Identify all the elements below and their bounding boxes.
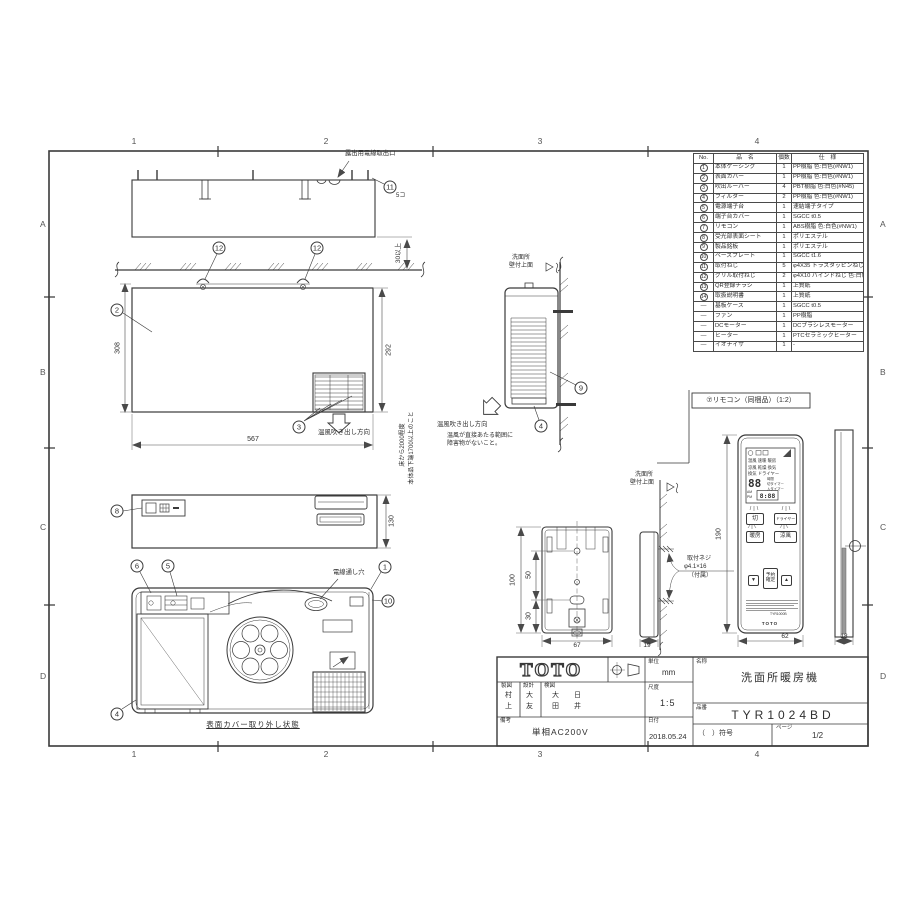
balloon-11-qty: 5コ — [396, 193, 405, 199]
air-direction-label-side: 温風吹き出し方向 — [437, 422, 487, 428]
mount-height-note-1: 床から2000程度 — [400, 423, 406, 466]
designer-name: 友 — [526, 703, 533, 710]
reserve-label-2: 確定 — [766, 579, 776, 584]
draft-label: 製図 — [501, 684, 512, 690]
mount-height-note-2: 本体品下端1700以上のこと — [409, 411, 415, 484]
part-name: 受光部表面シート — [714, 233, 777, 243]
part-name: 本体ケーシング — [714, 163, 777, 173]
table-row: 2 表面カバー 1 PP樹脂 色:白色(#NW1) — [694, 173, 864, 183]
part-name: DCモーター — [714, 322, 777, 332]
remote-toto-logo: TOTO — [762, 622, 778, 627]
fine-print-line — [746, 603, 798, 604]
grid-col-label: 4 — [755, 137, 760, 146]
table-row: 11 取付ねじ 5 φ4X35 トラスタッピンねじ — [694, 262, 864, 272]
part-no: 2 — [694, 173, 714, 183]
part-qty: 1 — [777, 302, 792, 312]
part-spec: 上質紙 — [792, 292, 864, 302]
part-qty: 1 — [777, 213, 792, 223]
balloon-6: 6 — [131, 560, 144, 573]
part-qty: 1 — [777, 312, 792, 322]
balloon-1: 1 — [379, 561, 392, 574]
bottom-view-lines — [123, 495, 391, 548]
part-no: 10 — [694, 252, 714, 262]
part-no: 3 — [694, 183, 714, 193]
scale-value: 1:5 — [660, 699, 676, 708]
part-no: 9 — [694, 243, 714, 253]
part-qty: 1 — [777, 163, 792, 173]
grid-row-label: D — [880, 672, 886, 681]
part-no: — — [694, 322, 714, 332]
clearance-note-1: 温風が直接あたる範囲に — [447, 433, 513, 439]
balloon-4-side: 4 — [535, 420, 548, 433]
part-spec: ポリエステル — [792, 243, 864, 253]
remote-reserve-button[interactable]: 予約 確定 — [763, 568, 778, 589]
dim-190: 190 — [716, 528, 723, 540]
parts-table-header: No. 品 名 個数 仕 様 — [694, 154, 864, 164]
table-row: 3 吹出ルーバー 4 PBT樹脂 色:白色(#N45) — [694, 183, 864, 193]
part-no: 14 — [694, 292, 714, 302]
col-spec: 仕 様 — [792, 154, 864, 164]
checker-name-1: 大 — [552, 692, 559, 699]
balloon-4-internal: 4 — [111, 708, 124, 721]
grid-col-label: 2 — [324, 750, 329, 759]
part-spec: 速結端子タイプ — [792, 203, 864, 213]
grid-row-label: C — [40, 523, 46, 532]
grid-col-label: 1 — [132, 137, 137, 146]
balloon-2: 2 — [111, 304, 124, 317]
part-spec: PTCセラミックヒーター — [792, 332, 864, 342]
balloon-9: 9 — [575, 382, 588, 395]
part-no: — — [694, 332, 714, 342]
table-row: 12 グリル取付ねじ 2 φ4X10 バインドねじ 色:白色 — [694, 272, 864, 282]
checker-name-2: 日 — [574, 692, 581, 699]
air-direction-label-front: 温風吹き出し方向 — [318, 430, 370, 437]
remote-display-pm: PM — [747, 496, 752, 499]
remote-display-timer-2: 切タイマー — [767, 483, 784, 486]
dim-30: 30 — [526, 612, 533, 620]
fine-print-line — [746, 608, 798, 609]
product-code: TYR1024BD — [731, 709, 834, 721]
code-label: 品番 — [696, 706, 707, 712]
dim-19: 19 — [643, 643, 650, 650]
balloon-3: 3 — [293, 421, 306, 434]
table-row: 5 電源端子台 1 速結端子タイプ — [694, 203, 864, 213]
remote-stop-button[interactable]: 切 — [746, 513, 764, 525]
remote-display-modes-2: 涼風 乾燥 換気 — [748, 466, 776, 470]
design-label: 設計 — [523, 684, 534, 690]
part-spec: PP樹脂 — [792, 312, 864, 322]
table-row: 13 QR登録チラシ 1 上質紙 — [694, 282, 864, 292]
internal-view-lines — [122, 572, 383, 713]
part-no: 11 — [694, 262, 714, 272]
unit-value: mm — [662, 669, 675, 677]
internal-view-caption: 表面カバー取り外し状態 — [206, 721, 300, 729]
grid-col-label: 2 — [324, 137, 329, 146]
drafter-name: 上 — [505, 703, 512, 710]
mount-screw-note-1: 取付ネジ — [687, 556, 711, 562]
grid-row-label: B — [40, 368, 46, 377]
part-spec: - — [792, 341, 864, 351]
grid-row-label: A — [40, 220, 46, 229]
balloon-11: 11 — [384, 181, 397, 194]
product-name: 洗面所暖房機 — [741, 673, 819, 684]
dim-18: 18 — [840, 634, 847, 641]
table-row: 8 受光部表面シート 1 ポリエステル — [694, 233, 864, 243]
part-spec: ポリエステル — [792, 233, 864, 243]
drawing-linework — [0, 0, 900, 900]
remote-display-modes-1: 温風 速暖 暖房 — [748, 459, 776, 463]
page-value: 1/2 — [812, 732, 823, 740]
part-name: 表面カバー — [714, 173, 777, 183]
part-spec: SGCC t0.5 — [792, 213, 864, 223]
part-name: 基板ケース — [714, 302, 777, 312]
part-no: 4 — [694, 193, 714, 203]
mount-screw-note-3: （付属） — [688, 573, 712, 579]
part-no: 7 — [694, 223, 714, 233]
dim-100: 100 — [510, 574, 517, 586]
part-no: 5 — [694, 203, 714, 213]
balloon-10: 10 — [382, 595, 395, 608]
drafter-name: 村 — [505, 692, 512, 699]
table-row: 9 製品銘板 1 ポリエステル — [694, 243, 864, 253]
part-spec: PP樹脂 色:白色(#NW1) — [792, 173, 864, 183]
dim-308: 308 — [115, 342, 122, 354]
col-no: No. — [694, 154, 714, 164]
fine-print-line — [746, 610, 786, 611]
table-row: 14 取扱説明書 1 上質紙 — [694, 292, 864, 302]
table-row: 10 ベースプレート 1 SGCC t1.6 — [694, 252, 864, 262]
side-view-lines — [477, 257, 576, 452]
remote-up-button[interactable]: ▲ — [781, 575, 792, 586]
remote-display-modes-3: 換気 ドライヤー — [748, 472, 779, 476]
part-spec: PBT樹脂 色:白色(#N45) — [792, 183, 864, 193]
date-label: 日付 — [648, 719, 659, 725]
grid-col-label: 3 — [538, 750, 543, 759]
grid-row-label: B — [880, 368, 886, 377]
remote-display-am: AM — [747, 491, 752, 494]
part-no: 13 — [694, 282, 714, 292]
part-qty: 1 — [777, 282, 792, 292]
checker-name-1: 田 — [552, 703, 559, 710]
balloon-12-left: 12 — [213, 242, 226, 255]
part-spec: DCブラシレスモーター — [792, 322, 864, 332]
grid-row-label: D — [40, 672, 46, 681]
table-row: 7 リモコン 1 ABS樹脂 色:白色(#NW1) — [694, 223, 864, 233]
part-name: リモコン — [714, 223, 777, 233]
part-qty: 1 — [777, 203, 792, 213]
clearance-note-2: 障害物がないこと。 — [447, 441, 501, 447]
part-name: 取扱説明書 — [714, 292, 777, 302]
wire-hole-label: 電線通し穴 — [333, 570, 364, 576]
part-name: QR登録チラシ — [714, 282, 777, 292]
part-qty: 2 — [777, 193, 792, 203]
wall-top-label-2: 壁付上面 — [509, 263, 533, 269]
part-name: 取付ねじ — [714, 262, 777, 272]
part-qty: 1 — [777, 322, 792, 332]
part-no: 6 — [694, 213, 714, 223]
dim-292: 292 — [386, 344, 393, 356]
part-spec: PP樹脂 色:白色(#NW1) — [792, 163, 864, 173]
toto-logo: TOTO — [520, 660, 582, 682]
part-no: 1 — [694, 163, 714, 173]
part-spec: 上質紙 — [792, 282, 864, 292]
part-qty: 1 — [777, 292, 792, 302]
remote-heater-button[interactable]: 暖房 — [746, 531, 764, 543]
dim-gap-30: 30以上 — [396, 243, 403, 263]
note-label: 備考 — [500, 719, 511, 725]
part-spec: SGCC t1.6 — [792, 252, 864, 262]
part-name: 端子台カバー — [714, 213, 777, 223]
part-name: 吹出ルーバー — [714, 183, 777, 193]
part-no: — — [694, 302, 714, 312]
part-qty: 1 — [777, 332, 792, 342]
remote-model-number: TYR1000B — [770, 613, 787, 616]
date-value: 2018.05.24 — [649, 733, 687, 741]
mount-screw-note-2: φ4.1×16 — [684, 564, 706, 570]
parts-table: No. 品 名 個数 仕 様 1 本体ケーシング 1 PP樹脂 色:白色(#NW… — [693, 153, 864, 352]
page-label: ページ — [776, 726, 792, 732]
remote-display-timer-1: 時間 — [767, 478, 774, 481]
check-label: 検図 — [544, 684, 555, 690]
remote-dryer-button[interactable]: ドライヤー — [774, 513, 797, 525]
part-no: 8 — [694, 233, 714, 243]
remote-display-time: 8:88 — [760, 493, 776, 500]
col-qty: 個数 — [777, 154, 792, 164]
part-no: 12 — [694, 272, 714, 282]
holder-wall-label-1: 洗面所 — [635, 472, 653, 478]
sign-label: （ ）符号 — [698, 730, 733, 737]
grid-col-label: 3 — [538, 137, 543, 146]
name-label: 名称 — [696, 660, 707, 666]
part-name: ファン — [714, 312, 777, 322]
parts-table-body: 1 本体ケーシング 1 PP樹脂 色:白色(#NW1) 2 表面カバー 1 PP… — [694, 163, 864, 351]
part-qty: 1 — [777, 173, 792, 183]
part-no: — — [694, 312, 714, 322]
drawing-sheet: 1 2 3 4 1 2 3 4 A B C D A B C D No. 品 名 … — [0, 0, 900, 900]
part-spec: PP樹脂 色:白色(#NW1) — [792, 193, 864, 203]
dim-62: 62 — [781, 634, 788, 641]
checker-name-2: 井 — [574, 703, 581, 710]
part-qty: 1 — [777, 252, 792, 262]
part-qty: 5 — [777, 262, 792, 272]
scale-label: 尺度 — [648, 686, 659, 692]
table-row: 1 本体ケーシング 1 PP樹脂 色:白色(#NW1) — [694, 163, 864, 173]
part-qty: 1 — [777, 223, 792, 233]
grid-col-label: 1 — [132, 750, 137, 759]
holder-wall-label-2: 壁付上面 — [630, 480, 654, 486]
outlet-label: 露出用電線取出口 — [345, 151, 395, 157]
part-qty: 1 — [777, 233, 792, 243]
part-name: グリル取付ねじ — [714, 272, 777, 282]
dim-567: 567 — [247, 436, 259, 443]
balloon-12-right: 12 — [311, 242, 324, 255]
table-row: 4 フィルター 2 PP樹脂 色:白色(#NW1) — [694, 193, 864, 203]
part-spec: φ4X10 バインドねじ 色:白色 — [792, 272, 864, 282]
top-view-lines — [132, 161, 412, 279]
dim-130: 130 — [389, 515, 396, 527]
remote-down-button[interactable]: ▼ — [748, 575, 759, 586]
part-qty: 2 — [777, 272, 792, 282]
remote-detail-title: ⑦リモコン（同梱品）（1:2） — [706, 397, 796, 404]
part-spec: ABS樹脂 色:白色(#NW1) — [792, 223, 864, 233]
fine-print-line — [746, 605, 794, 606]
part-name: フィルター — [714, 193, 777, 203]
table-row: — 基板ケース 1 SGCC t0.5 — [694, 302, 864, 312]
table-row: — イオナイザ 1 - — [694, 341, 864, 351]
part-spec: φ4X35 トラスタッピンねじ — [792, 262, 864, 272]
remote-display-digits: 88 — [748, 478, 761, 489]
front-view-lines — [115, 262, 425, 450]
table-row: — DCモーター 1 DCブラシレスモーター — [694, 322, 864, 332]
part-name: ベースプレート — [714, 252, 777, 262]
part-spec: SGCC t0.5 — [792, 302, 864, 312]
balloon-8: 8 — [111, 505, 124, 518]
grid-row-label: C — [880, 523, 886, 532]
table-row: — ファン 1 PP樹脂 — [694, 312, 864, 322]
table-row: 6 端子台カバー 1 SGCC t0.5 — [694, 213, 864, 223]
designer-name: 大 — [526, 692, 533, 699]
part-name: 電源端子台 — [714, 203, 777, 213]
part-no: — — [694, 341, 714, 351]
part-name: ヒーター — [714, 332, 777, 342]
wall-top-label-1: 洗面所 — [512, 255, 530, 261]
part-qty: 4 — [777, 183, 792, 193]
part-qty: 1 — [777, 341, 792, 351]
table-row: — ヒーター 1 PTCセラミックヒーター — [694, 332, 864, 342]
grid-col-label: 4 — [755, 750, 760, 759]
note-value: 単相AC200V — [532, 728, 589, 737]
dim-50: 50 — [526, 571, 533, 579]
remote-cool-button[interactable]: 涼風 — [774, 531, 797, 543]
unit-label: 単位 — [648, 660, 659, 666]
col-name: 品 名 — [714, 154, 777, 164]
part-qty: 1 — [777, 243, 792, 253]
part-name: 製品銘板 — [714, 243, 777, 253]
dim-67: 67 — [573, 643, 580, 650]
part-name: イオナイザ — [714, 341, 777, 351]
balloon-5: 5 — [162, 560, 175, 573]
grid-row-label: A — [880, 220, 886, 229]
fine-print-line — [746, 600, 798, 601]
